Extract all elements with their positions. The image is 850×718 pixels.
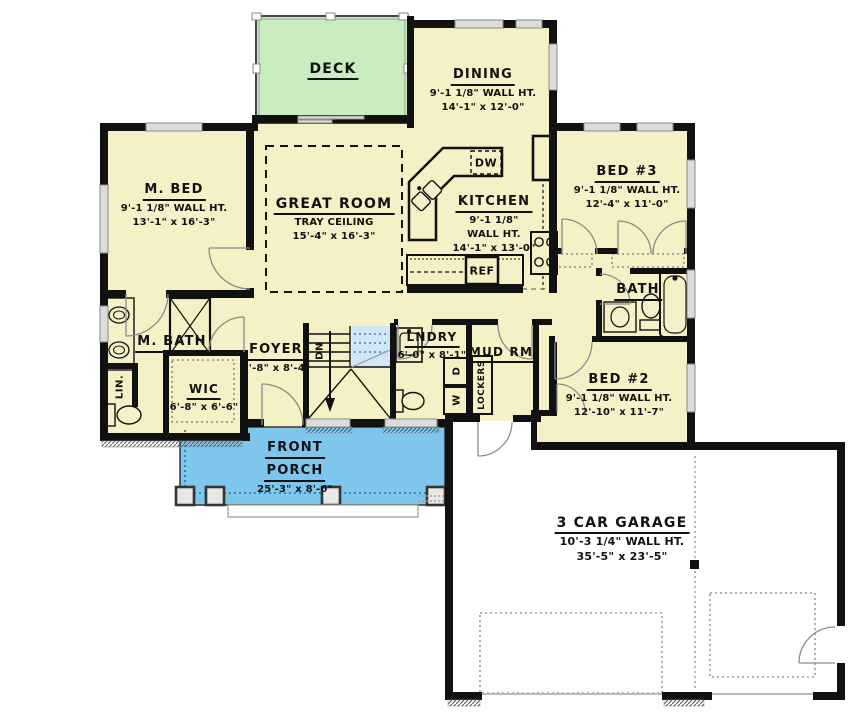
window: [306, 419, 350, 427]
window: [637, 123, 673, 131]
window: [687, 364, 695, 412]
window: [146, 123, 202, 131]
toilet: [106, 404, 141, 426]
window: [516, 20, 542, 28]
refrigerator: [466, 257, 498, 284]
window: [100, 306, 108, 342]
bathtub: [660, 271, 690, 337]
sink: [109, 342, 129, 358]
floor-plan-drawing: [0, 0, 850, 718]
window: [584, 123, 620, 131]
sink: [611, 307, 629, 327]
window: [687, 160, 695, 208]
toilet: [640, 294, 662, 330]
garage-post: [690, 560, 699, 569]
shower: [170, 298, 210, 354]
garage-area: [453, 421, 837, 692]
window: [687, 270, 695, 318]
window: [549, 44, 557, 90]
sliding-door: [298, 120, 332, 123]
sliding-door: [298, 116, 364, 119]
window: [455, 20, 503, 28]
porch-step: [228, 505, 418, 517]
floor-plan: DECK DINING 9'-1 1/8" WALL HT. 14'-1" x …: [0, 0, 850, 718]
lockers-cabinet: [472, 356, 492, 414]
window: [385, 419, 437, 427]
deck-area: [256, 16, 408, 123]
window: [100, 185, 108, 253]
